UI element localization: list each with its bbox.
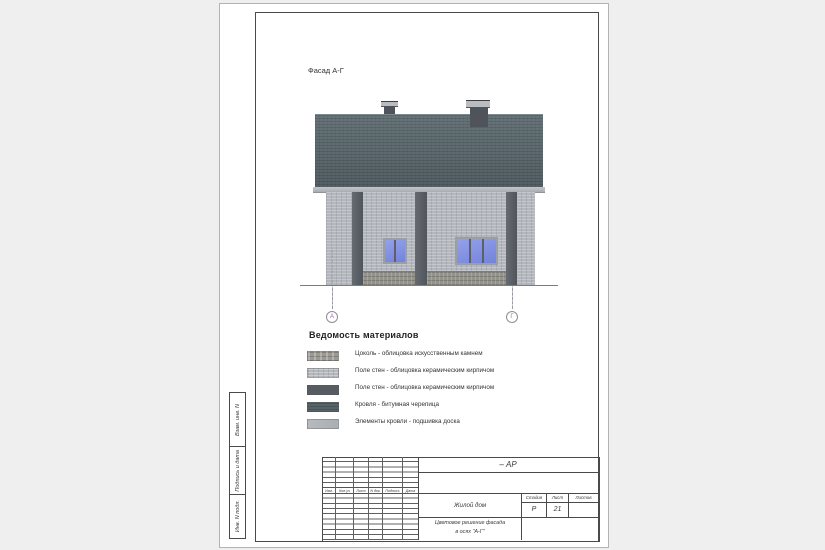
titleblock-line [368,457,369,540]
material-label: Цоколь - облицовка искусственным камнем [355,350,483,357]
axis-leader-g [512,288,513,309]
axis-bubble-a: А [326,311,338,323]
sheet-title-line2: в осях "А-Г" [419,527,521,537]
sheet-number-label: Лист [547,493,568,502]
material-label: Элементы кровли - подшивка доска [355,418,460,425]
pilaster [506,192,517,285]
material-label: Кровля - битумная черепица [355,401,439,408]
material-swatch-stone [307,351,339,361]
sheets-total-value [569,502,598,517]
stage-value: Р [522,502,546,517]
strip-label: Взам. инв. N [235,404,241,436]
strip-cell-inv-podl: Инв. N подл. [229,494,246,539]
plinth-segment [427,271,507,286]
sheet-number-value: 21 [547,502,568,517]
strip-cell-vzam-inv: Взам. инв. N [229,392,246,448]
rev-header-list: Лист [354,487,368,494]
axis-letter-a: А [330,314,334,320]
plinth-segment [363,271,415,286]
ground-line [300,285,558,286]
titleblock-line [353,457,354,540]
window-mullion [394,240,396,262]
sheets-total-label: Листов [569,493,598,502]
pilaster [415,192,427,285]
stage-label: Стадия [522,493,546,502]
strip-label: Подпись и дата [235,450,241,492]
material-label: Поле стен - облицовка керамическим кирпи… [355,384,494,391]
material-swatch-light-brick [307,368,339,378]
rev-header-data: Дата [403,487,418,494]
window-mullion [469,239,471,263]
scanned-drawing-canvas: { "sheet": { "facade_label": "Фасад А-Г"… [0,0,825,550]
strip-label: Инв. N подл. [235,500,241,532]
revision-grid [322,457,419,540]
window-mullion [482,239,484,263]
rev-header-koluch: Кол.уч [336,487,353,494]
material-swatch-dark-brick [307,385,339,395]
chimney-right-body [470,107,488,127]
titleblock-line [402,457,403,540]
pilaster [352,192,363,285]
titleblock-line [335,457,336,540]
rev-header-izm: Изм. [323,487,335,494]
rev-header-ndok: N док. [369,487,382,494]
roof [315,114,543,188]
window-two-pane [383,238,407,264]
axis-bubble-g: Г [506,311,518,323]
material-swatch-soffit [307,419,339,429]
rev-header-podpis: Подпись [383,487,402,494]
strip-cell-podpis-data: Подпись и дата [229,446,246,496]
materials-title: Ведомость материалов [309,330,419,340]
titleblock-line [418,472,598,473]
doc-code: – АР [418,457,598,472]
titleblock-line [382,457,383,540]
axis-letter-g: Г [510,314,513,320]
project-name: Жилой дом [419,494,521,516]
window-three-pane [455,237,498,265]
axis-leader-a [332,288,333,309]
material-swatch-roof [307,402,339,412]
material-label: Поле стен - облицовка керамическим кирпи… [355,367,494,374]
facade-title: Фасад А-Г [308,66,344,75]
